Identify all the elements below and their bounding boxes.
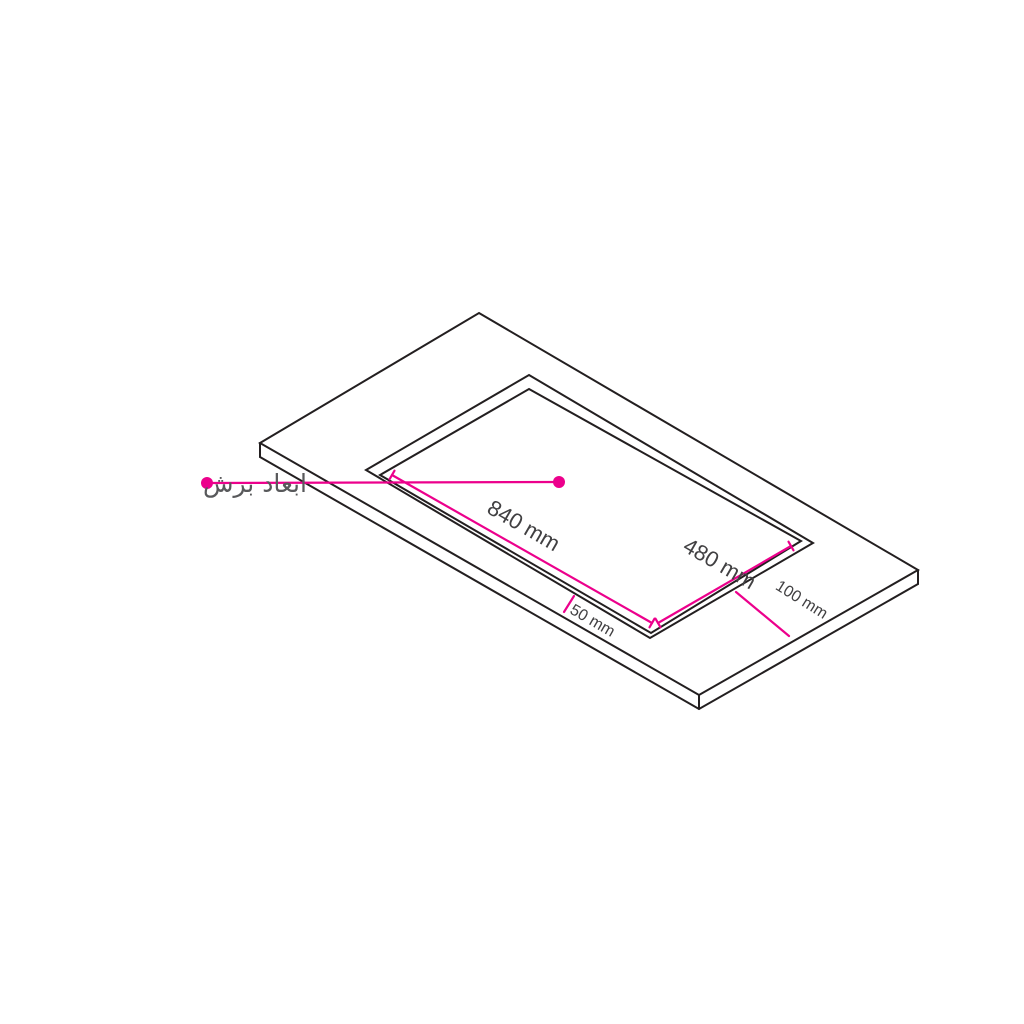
slab-top-face: [260, 313, 918, 695]
diagram-canvas: ابعاد برش 840 mm 480 mm 50 mm 100 mm: [0, 0, 1024, 1024]
countertop-dimension-drawing: ابعاد برش 840 mm 480 mm 50 mm 100 mm: [0, 0, 1024, 1024]
callout-dot-right: [553, 476, 565, 488]
callout-label: ابعاد برش: [203, 469, 307, 498]
countertop-slab: [260, 313, 918, 709]
